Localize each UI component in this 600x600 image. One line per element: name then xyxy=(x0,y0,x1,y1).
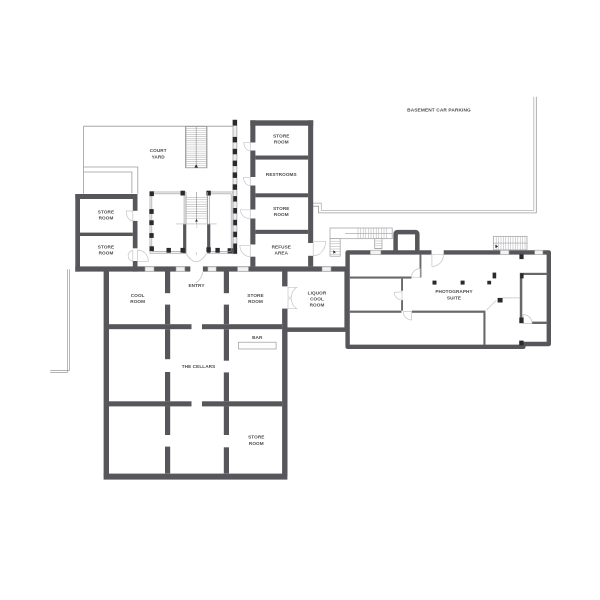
svg-text:ROOM: ROOM xyxy=(274,212,289,217)
svg-text:ROOM: ROOM xyxy=(310,303,325,308)
svg-text:REFUSE: REFUSE xyxy=(272,245,291,250)
svg-text:STORE: STORE xyxy=(247,293,263,298)
svg-text:BASEMENT CAR PARKING: BASEMENT CAR PARKING xyxy=(407,108,471,114)
svg-text:STORE: STORE xyxy=(98,210,114,215)
svg-text:ROOM: ROOM xyxy=(248,299,263,304)
svg-text:ROOM: ROOM xyxy=(130,299,145,304)
svg-text:THE CELLARS: THE CELLARS xyxy=(182,364,216,369)
svg-text:PHOTOGRAPHY: PHOTOGRAPHY xyxy=(435,289,473,294)
svg-text:LIQUOR: LIQUOR xyxy=(308,290,327,295)
svg-text:COOL: COOL xyxy=(310,296,324,301)
svg-text:RESTROOMS: RESTROOMS xyxy=(266,172,297,177)
svg-text:STORE: STORE xyxy=(273,133,289,138)
svg-text:ENTRY: ENTRY xyxy=(188,283,205,288)
svg-text:STORE: STORE xyxy=(248,435,264,440)
svg-text:YARD: YARD xyxy=(152,154,166,159)
svg-text:COURT: COURT xyxy=(150,148,167,153)
svg-text:ROOM: ROOM xyxy=(249,441,264,446)
svg-text:ROOM: ROOM xyxy=(99,251,114,256)
svg-text:COOL: COOL xyxy=(131,293,145,298)
svg-text:ROOM: ROOM xyxy=(274,140,289,145)
svg-text:BAR: BAR xyxy=(252,335,263,340)
svg-text:AREA: AREA xyxy=(275,251,289,256)
svg-text:SUITE: SUITE xyxy=(447,295,461,300)
svg-text:STORE: STORE xyxy=(273,206,289,211)
svg-text:ROOM: ROOM xyxy=(99,216,114,221)
svg-text:STORE: STORE xyxy=(98,245,114,250)
